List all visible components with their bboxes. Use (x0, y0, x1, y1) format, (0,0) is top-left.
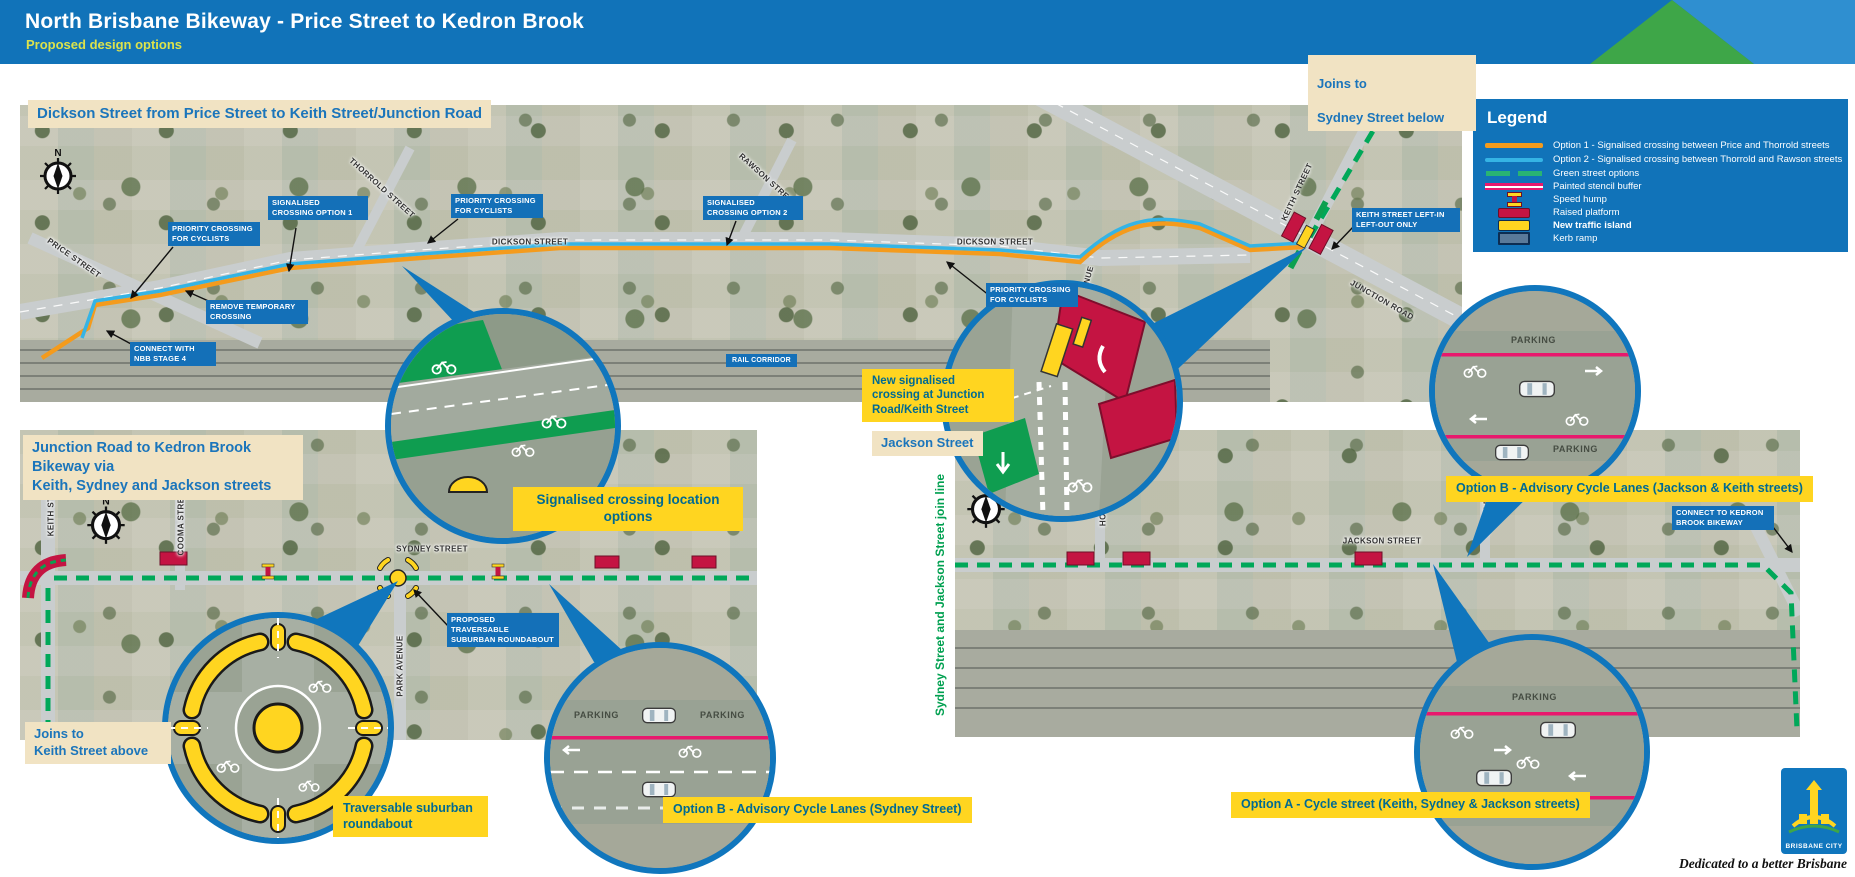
callout-connect-nbb-stage4: CONNECT WITH NBB STAGE 4 (130, 342, 216, 366)
highlight-new-signalised-crossing: New signalised crossing at Junction Road… (862, 369, 1014, 422)
callout-keith-left-in-out: KEITH STREET LEFT-IN LEFT-OUT ONLY (1352, 208, 1460, 232)
council-logo-text: BRISBANE CITY (1781, 843, 1847, 850)
street-label-dickson-1: DICKSON STREET (492, 238, 568, 247)
jackson-street-title: Jackson Street (872, 431, 983, 456)
callout-proposed-roundabout: PROPOSED TRAVERSABLE SUBURBAN ROUNDABOUT (447, 613, 559, 647)
parking-text: PARKING (700, 710, 745, 720)
joins-keith-street-note: Joins to Keith Street above (25, 722, 171, 764)
option2-line-swatch (1483, 158, 1545, 162)
legend-item-kerb-ramp: Kerb ramp (1483, 232, 1597, 245)
joins-keith-line1: Joins to (34, 726, 84, 741)
label-optiona-cycle-street: Option A - Cycle street (Keith, Sydney &… (1231, 792, 1590, 818)
inset-optionb-jackson: PARKING PARKING (1429, 285, 1641, 497)
bikeway-poster: North Brisbane Bikeway - Price Street to… (0, 0, 1855, 877)
rail-corridor-label: RAIL CORRIDOR (726, 354, 797, 367)
parking-text: PARKING (1553, 444, 1598, 454)
inset-optiona-cycle-street: PARKING PARKING (1414, 634, 1650, 870)
label-optionb-sydney: Option B - Advisory Cycle Lanes (Sydney … (663, 797, 972, 823)
joins-sydney-street-note: Joins to Sydney Street below (1308, 55, 1476, 131)
council-tagline: Dedicated to a better Brisbane (1447, 856, 1847, 872)
legend-item-green-street: Green street options (1483, 167, 1639, 180)
street-label-sydney: SYDNEY STREET (396, 545, 468, 554)
legend-item-option1: Option 1 - Signalised crossing between P… (1483, 139, 1830, 152)
top-map-title: Dickson Street from Price Street to Keit… (28, 100, 491, 128)
callout-signalised-option2: SIGNALISED CROSSING OPTION 2 (703, 196, 803, 220)
pink-buffer-swatch (1483, 183, 1545, 190)
street-label-park-avenue: PARK AVENUE (396, 635, 405, 696)
joins-keith-line2: Keith Street above (34, 743, 148, 758)
traffic-island-icon (1483, 220, 1545, 231)
raised-platform-icon (1483, 208, 1545, 218)
option1-line-swatch (1483, 143, 1545, 148)
council-logo-graphic (1781, 768, 1847, 854)
joins-note-line1: Joins to (1317, 76, 1367, 91)
raised-platforms (160, 552, 716, 568)
joins-note-line2: Sydney Street below (1317, 110, 1444, 125)
header-bar: North Brisbane Bikeway - Price Street to… (0, 0, 1855, 64)
label-optionb-jackson-keith: Option B - Advisory Cycle Lanes (Jackson… (1446, 476, 1813, 502)
page-subtitle: Proposed design options (26, 37, 182, 52)
kerb-ramp-icon (1483, 232, 1545, 245)
compass-icon (83, 494, 129, 548)
brisbane-city-council-logo: BRISBANE CITY (1781, 768, 1847, 854)
legend-title: Legend (1487, 108, 1547, 128)
legend-item-raised-platform: Raised platform (1483, 206, 1620, 219)
parking-text: PARKING (1511, 335, 1556, 345)
parking-text: PARKING (1512, 692, 1557, 702)
compass-icon (36, 146, 80, 198)
legend-item-traffic-island: New traffic island (1483, 219, 1632, 232)
header-brand-shapes (1560, 0, 1855, 64)
label-traversable-roundabout: Traversable suburban roundabout (333, 796, 488, 837)
page-title: North Brisbane Bikeway - Price Street to… (25, 10, 584, 34)
highlight-crossing-location-options: Signalised crossing location options (513, 487, 743, 531)
sydney-jackson-join-note: Sydney Street and Jackson Street join li… (933, 474, 947, 716)
parking-text: PARKING (574, 710, 619, 720)
legend-item-stencil-buffer: Painted stencil buffer (1483, 180, 1642, 193)
inset-optionb-sydney: PARKING PARKING (544, 642, 776, 874)
callout-priority-crossing-1: PRIORITY CROSSING FOR CYCLISTS (168, 222, 260, 246)
callout-connect-kedron-brook: CONNECT TO KEDRON BROOK BIKEWAY (1672, 506, 1774, 530)
legend-panel: Legend Option 1 - Signalised crossing be… (1473, 99, 1848, 252)
callout-remove-temporary-crossing: REMOVE TEMPORARY CROSSING (206, 300, 308, 324)
callout-priority-crossing-3: PRIORITY CROSSING FOR CYCLISTS (986, 283, 1078, 307)
callout-signalised-option1: SIGNALISED CROSSING OPTION 1 (268, 196, 368, 220)
street-label-dickson-2: DICKSON STREET (957, 238, 1033, 247)
bl-title-line1: Junction Road to Kedron Brook Bikeway vi… (32, 440, 251, 475)
bottom-left-map-title: Junction Road to Kedron Brook Bikeway vi… (23, 435, 303, 500)
bl-title-line2: Keith, Sydney and Jackson streets (32, 478, 271, 494)
speed-hump-icon (1483, 193, 1545, 206)
legend-item-speed-hump: Speed hump (1483, 193, 1607, 206)
callout-priority-crossing-2: PRIORITY CROSSING FOR CYCLISTS (451, 194, 543, 218)
legend-item-option2: Option 2 - Signalised crossing between T… (1483, 153, 1842, 166)
green-dashed-swatch (1483, 171, 1545, 176)
street-label-jackson: JACKSON STREET (1343, 537, 1422, 546)
